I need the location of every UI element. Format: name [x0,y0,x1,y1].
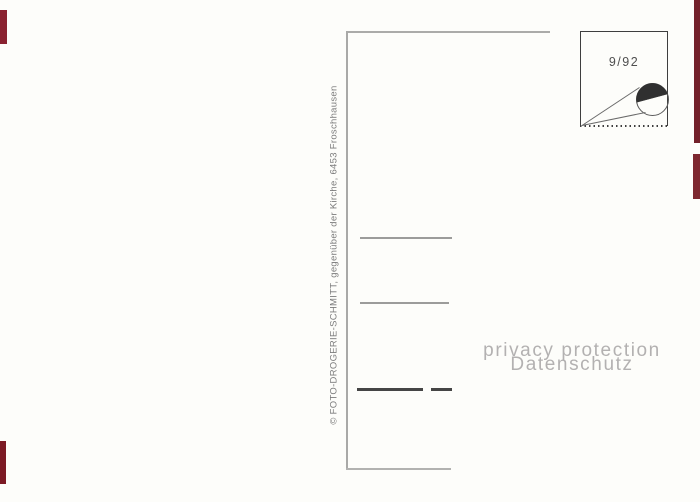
scan-edge-mark-left-top [0,10,7,44]
center-divider [346,31,348,470]
copyright-text: © FOTO-DROGERIE-SCHMITT, gegenüber der K… [329,85,340,424]
bottom-rule [346,468,451,470]
postcard-back: © FOTO-DROGERIE-SCHMITT, gegenüber der K… [0,0,700,502]
privacy-watermark: privacy protection Datenschutz [483,344,661,371]
address-line-2 [360,302,449,304]
scan-edge-mark-left-bottom [0,441,6,484]
address-line-1 [360,237,452,239]
page-curl-icon [581,32,669,127]
top-rule [346,31,550,33]
stamp-box: 9/92 [580,31,668,126]
address-line-3 [357,388,423,391]
scan-edge-mark-right-top [694,0,700,143]
stamp-box-dotted-edge [580,125,668,127]
address-line-3-short [431,388,452,391]
scan-edge-mark-right-mid [693,154,700,199]
